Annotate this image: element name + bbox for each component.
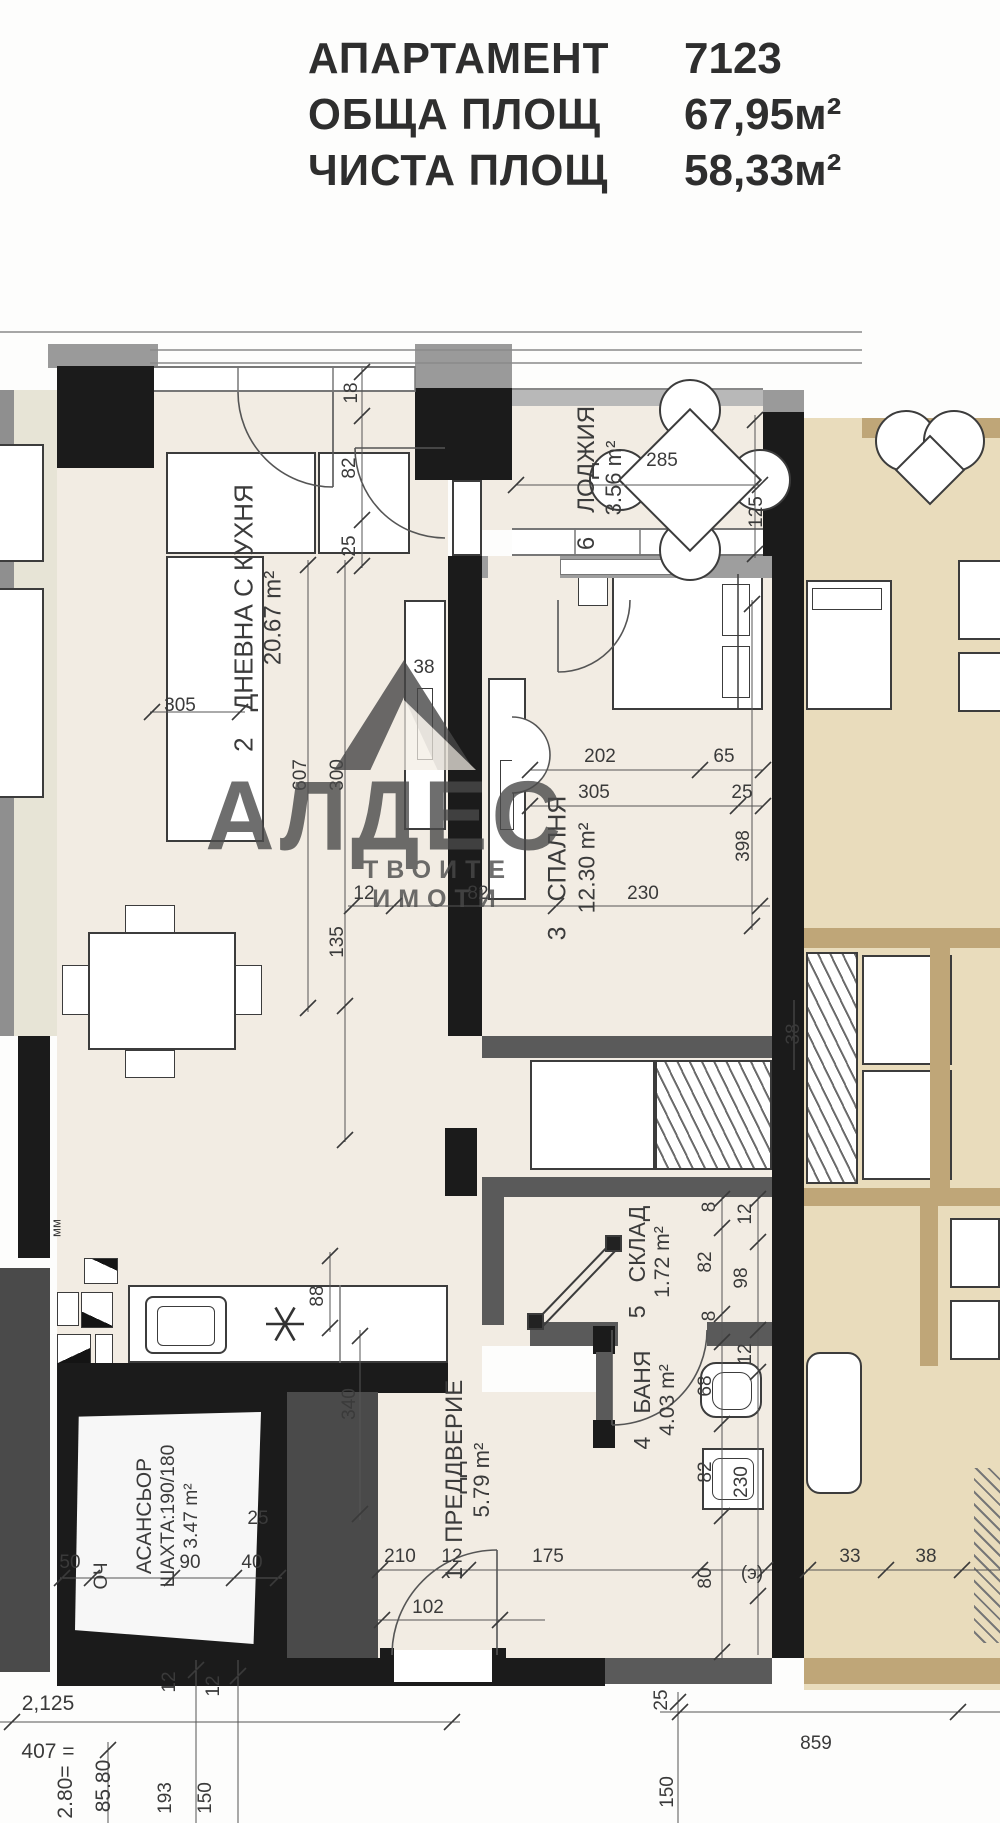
dimension-label: 398	[733, 830, 755, 862]
adjacent-dresser	[958, 652, 1000, 712]
dimension-label: 340	[339, 1388, 361, 1420]
wall	[596, 1352, 612, 1422]
wall	[772, 556, 804, 1658]
dimension-label: 25	[339, 535, 361, 556]
wall	[707, 1322, 772, 1346]
dimension-label: 285	[646, 450, 678, 472]
floor-plan-page: АПАРТАМЕНТ 7123 ОБЩА ПЛОЩ 67,95м² ЧИСТА …	[0, 0, 1000, 1823]
dimension-label: ОЧ	[91, 1562, 113, 1589]
vent-shaft	[95, 1334, 113, 1364]
dining-table	[88, 932, 236, 1050]
net-area-value: 58,33м²	[684, 146, 841, 196]
apartment-label: АПАРТАМЕНТ	[308, 34, 609, 84]
wall-pillar	[415, 388, 512, 480]
room-label-sklad: 5 СКЛАД1.72 m²	[624, 1206, 676, 1319]
dimension-label: 25	[247, 1508, 268, 1530]
dimension-label: 33	[839, 1546, 860, 1568]
dimension-label: 80	[695, 1567, 717, 1588]
dimension-label: 68	[695, 1375, 717, 1396]
wall	[804, 1658, 1000, 1684]
dimension-label: 2.80=	[54, 1765, 78, 1818]
net-area-label: ЧИСТА ПЛОЩ	[308, 146, 608, 196]
vent-shaft	[84, 1258, 118, 1284]
dimension-label: 82	[339, 457, 361, 478]
adjacent-furniture	[0, 444, 44, 562]
terrace-window-band	[152, 366, 415, 392]
bedroom-door-opening	[488, 556, 560, 578]
chair	[234, 965, 262, 1015]
wall	[920, 1206, 938, 1366]
wall	[804, 1188, 1000, 1206]
chair	[125, 905, 175, 933]
dimension-label: 88	[307, 1285, 329, 1306]
wall	[763, 390, 804, 412]
wall	[48, 344, 158, 368]
dimension-label: 230	[627, 883, 659, 905]
vent-shaft	[81, 1292, 113, 1328]
wall	[593, 1326, 615, 1354]
wall	[930, 948, 950, 1188]
dimension-label: 125	[746, 496, 768, 528]
total-area-label: ОБЩА ПЛОЩ	[308, 90, 601, 140]
wall	[57, 1363, 448, 1393]
wall	[593, 1420, 615, 1448]
door-jamb	[380, 1648, 394, 1682]
dimension-label: 12	[735, 1203, 757, 1224]
wall	[482, 1177, 772, 1197]
kitchen-sink-basin	[157, 1306, 215, 1346]
wall	[18, 1036, 50, 1258]
dimension-label: 175	[532, 1546, 564, 1568]
wall-pillar	[57, 366, 154, 468]
adjacent-wardrobe	[806, 952, 858, 1184]
loggia-door-panel	[452, 480, 482, 556]
adjacent-sink	[950, 1218, 1000, 1288]
dimension-label: 202	[584, 746, 616, 768]
room-label-loggia: 6 ЛОДЖИЯ3.56 m²	[573, 406, 627, 550]
room-label-banya: 4 БАНЯ4.03 m²	[629, 1351, 681, 1450]
dimension-label: 150	[657, 1776, 679, 1808]
wall-section	[287, 1392, 378, 1658]
loggia-railing	[512, 388, 763, 406]
dimension-label: 38	[783, 1023, 805, 1044]
stairs-hatch	[974, 1468, 1000, 1643]
wardrobe-hanging	[655, 1060, 772, 1170]
vent-shaft	[57, 1334, 91, 1364]
adjacent-pillow	[812, 588, 882, 610]
dimension-label: 2,125	[22, 1692, 75, 1716]
dimension-label: 12	[441, 1546, 462, 1568]
wall	[804, 928, 1000, 948]
vent-shaft	[57, 1292, 79, 1326]
bedroom-window	[560, 559, 702, 575]
adjacent-furniture	[0, 588, 44, 798]
room-label-living: 2 ДНЕВНА С КУХНЯ20.67 m²	[229, 484, 288, 752]
pillow	[722, 646, 750, 698]
dimension-label: 82	[695, 1461, 717, 1482]
adjacent-dresser	[958, 560, 1000, 640]
entrance-door-opening	[394, 1650, 494, 1682]
dimension-label: 859	[800, 1733, 832, 1755]
total-area-value: 67,95м²	[684, 90, 841, 140]
wall	[605, 1658, 772, 1684]
dimension-label: 18	[341, 382, 363, 403]
adjacent-fixture	[950, 1300, 1000, 1360]
dimension-label: 305	[578, 782, 610, 804]
dimension-label: (э)	[741, 1563, 763, 1585]
dimension-label: 305	[164, 695, 196, 717]
dimension-label: 65	[713, 746, 734, 768]
wall	[415, 344, 512, 390]
watermark-tagline: ТВОИТЕ ИМОТИ	[322, 856, 554, 914]
dimension-label: 193	[155, 1782, 177, 1814]
dimension-label: 85.80	[92, 1760, 116, 1813]
wall	[57, 1658, 605, 1686]
room-label-mm: мм	[48, 1219, 63, 1237]
dimension-label: 25	[731, 782, 752, 804]
dimension-label: 90	[179, 1552, 200, 1574]
armchair	[318, 452, 410, 554]
dimension-label: 38	[915, 1546, 936, 1568]
wall-section	[0, 1268, 50, 1672]
apartment-number: 7123	[684, 34, 782, 84]
dimension-label: 150	[195, 1782, 217, 1814]
toilet-seat	[712, 1372, 752, 1410]
dimension-label: 12	[735, 1343, 757, 1364]
adjacent-bathtub	[806, 1352, 862, 1494]
pillow	[722, 584, 750, 636]
door-jamb	[445, 1128, 477, 1196]
dimension-label: 102	[412, 1597, 444, 1619]
dimension-label: 8	[699, 1311, 721, 1322]
dimension-label: 230	[731, 1466, 753, 1498]
wall	[482, 1197, 504, 1325]
dimension-label: 98	[731, 1267, 753, 1288]
dimension-label: 38	[413, 657, 434, 679]
dimension-label: 407 =	[21, 1740, 74, 1764]
dimension-label: 25	[651, 1689, 673, 1710]
door-jamb	[492, 1648, 506, 1682]
chair	[125, 1050, 175, 1078]
chair	[62, 965, 90, 1015]
wall	[862, 418, 1000, 438]
dimension-label: 82	[695, 1251, 717, 1272]
dimension-label: 50	[59, 1552, 80, 1574]
wall	[482, 1036, 772, 1058]
wardrobe	[530, 1060, 655, 1170]
dimension-label: 135	[327, 926, 349, 958]
dimension-label: 12	[159, 1671, 181, 1692]
dimension-label: 210	[384, 1546, 416, 1568]
dimension-label: 12	[203, 1675, 225, 1696]
corridor-floor	[448, 1036, 482, 1392]
dimension-label: 40	[241, 1552, 262, 1574]
loggia-window-band	[512, 528, 763, 556]
wall-pillar	[763, 412, 804, 560]
dimension-label: 8	[699, 1202, 721, 1213]
